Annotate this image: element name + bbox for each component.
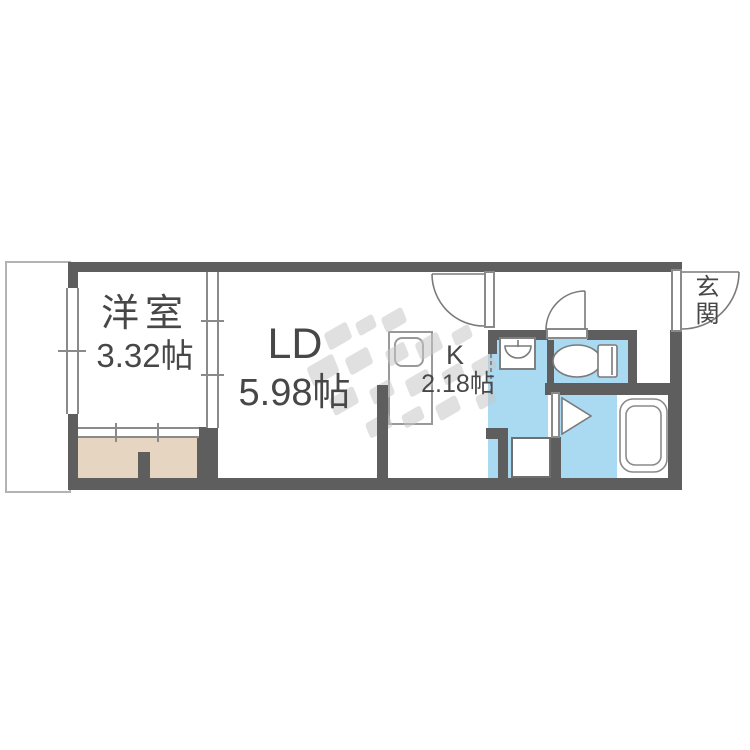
side-corridor-floor [5, 261, 71, 493]
wall [670, 330, 682, 385]
bathtub-zone-floor [617, 393, 668, 478]
wall [68, 262, 78, 290]
wall [628, 330, 637, 385]
kitchen-size: 2.18帖 [413, 371, 503, 397]
watermark-block [381, 307, 408, 334]
kitchen-name: K [432, 341, 478, 369]
wall [668, 383, 682, 490]
ld-door-leaf [484, 271, 495, 328]
watermark-block [435, 395, 462, 422]
watermark-block [355, 313, 378, 336]
balcony-divider-wall [138, 452, 150, 478]
western-room-size: 3.32帖 [70, 339, 220, 374]
entrance-label: 玄関 [689, 273, 717, 329]
wall [68, 478, 682, 490]
western-room-name: 洋室 [80, 295, 210, 335]
wall [547, 340, 554, 385]
wall [68, 413, 78, 490]
wall [498, 430, 508, 478]
partition-tick [201, 374, 224, 376]
entrance-door-leaf [671, 269, 682, 332]
toilet-floor [547, 338, 628, 385]
wall [545, 383, 682, 395]
window [78, 427, 199, 438]
watermark-block [384, 341, 409, 367]
watermark-block [401, 405, 425, 429]
window-tick [157, 423, 159, 442]
bathroom-door-leaf [551, 392, 560, 438]
window-tick [115, 423, 117, 442]
wall [68, 262, 682, 272]
wall [377, 385, 388, 478]
wall [197, 427, 218, 478]
ld-room-size: 5.98帖 [222, 374, 367, 414]
ld-room-name: LD [240, 322, 350, 367]
floor-plan: 洋室 3.32帖 LD 5.98帖 K 2.18帖 玄関 [0, 0, 750, 750]
door-swing-arc [546, 291, 585, 330]
washbasin-box [499, 337, 536, 370]
toilet-door-leaf [546, 328, 588, 339]
washing-machine-pan [511, 437, 551, 478]
wall [488, 340, 497, 354]
bathroom-floor [553, 393, 617, 478]
wall [551, 437, 561, 478]
